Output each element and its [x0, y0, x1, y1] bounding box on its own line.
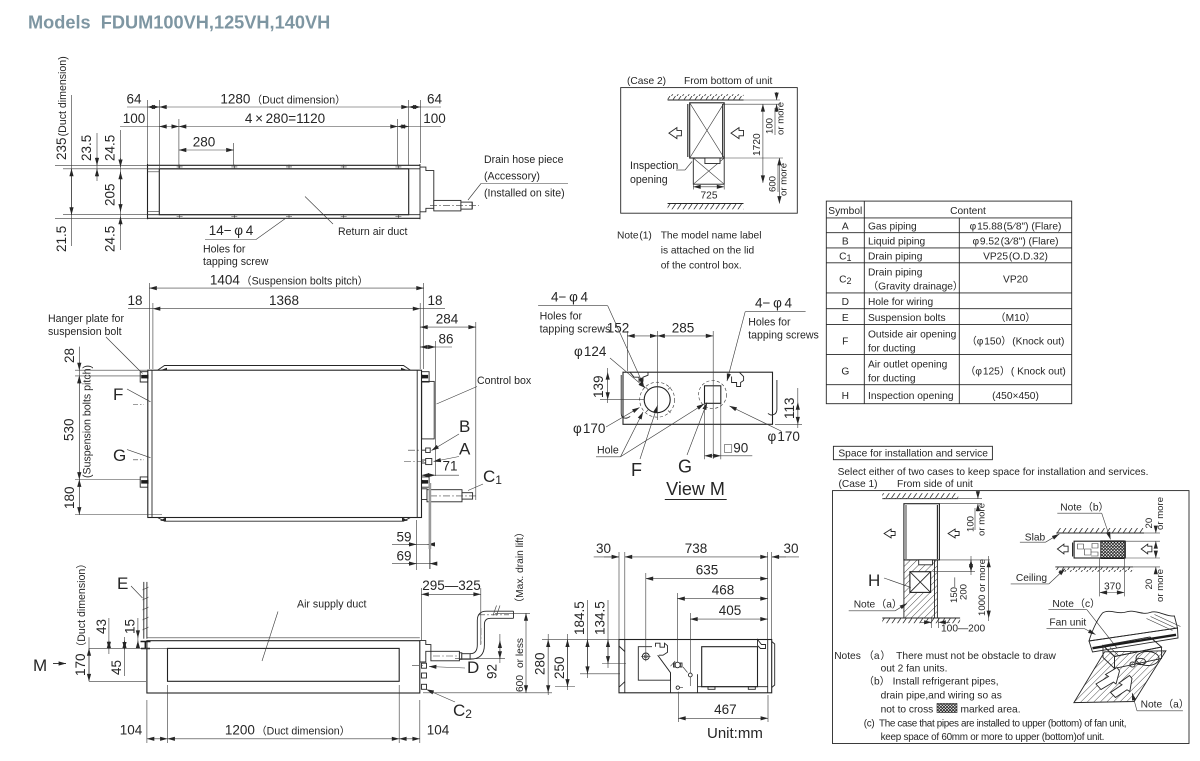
svg-text:(Case 2): (Case 2): [627, 76, 666, 87]
svg-text:20: 20: [1144, 518, 1155, 529]
svg-text:or less: or less: [515, 638, 526, 668]
svg-text:1368: 1368: [269, 293, 299, 308]
svg-text:Liquid piping: Liquid piping: [868, 236, 926, 247]
svg-text:Holes for: Holes for: [540, 311, 583, 323]
svg-text:The model name label: The model name label: [661, 231, 762, 242]
svg-text:600: 600: [515, 675, 526, 692]
svg-text:69: 69: [396, 549, 411, 564]
svg-text:24.5: 24.5: [103, 135, 118, 161]
svg-text:20: 20: [1144, 579, 1155, 590]
svg-text:Air supply duct: Air supply duct: [297, 599, 367, 611]
svg-text:Drain hose piece: Drain hose piece: [484, 154, 564, 166]
svg-text:M: M: [33, 656, 47, 675]
svg-text:104: 104: [120, 723, 143, 738]
svg-text:φ 15.88 (5 ∕ 8") (Flare): φ 15.88 (5 ∕ 8") (Flare): [970, 221, 1062, 232]
svg-text:Hole for wiring: Hole for wiring: [868, 297, 933, 308]
svg-text:drain pipe,and wiring so as: drain pipe,and wiring so as: [881, 691, 1002, 702]
svg-text:285: 285: [672, 320, 695, 335]
svg-text:23.5: 23.5: [79, 135, 94, 161]
svg-text:(Accessory): (Accessory): [484, 171, 540, 183]
svg-text:100: 100: [765, 118, 776, 134]
svg-text:468: 468: [712, 583, 735, 598]
svg-text:30: 30: [783, 541, 798, 556]
svg-text:100—200: 100—200: [941, 624, 986, 635]
svg-text:280: 280: [193, 135, 216, 150]
svg-text:F: F: [113, 385, 123, 404]
svg-text:tapping screw: tapping screw: [203, 256, 269, 268]
svg-text:530: 530: [62, 418, 77, 441]
svg-text:out 2 fan units.: out 2 fan units.: [881, 664, 948, 675]
svg-text:467: 467: [714, 702, 737, 717]
svg-text:59: 59: [396, 530, 411, 545]
svg-text:205: 205: [103, 183, 118, 206]
svg-text:C2: C2: [453, 701, 472, 721]
svg-text:18: 18: [127, 293, 142, 308]
svg-text:(Case 1): (Case 1): [839, 479, 878, 490]
svg-text:VP25 (O.D.32): VP25 (O.D.32): [983, 251, 1048, 262]
svg-text:284: 284: [436, 312, 459, 327]
svg-text:Space for installation and ser: Space for installation and service: [838, 449, 988, 460]
svg-text:F: F: [631, 460, 642, 480]
svg-text:170 （Duct dimension）: 170 （Duct dimension）: [73, 558, 88, 676]
svg-text:D: D: [842, 297, 849, 308]
svg-text:suspension bolt: suspension bolt: [48, 326, 122, 338]
svg-text:Symbol: Symbol: [828, 206, 862, 217]
svg-text:4− φ 4: 4− φ 4: [551, 290, 589, 305]
svg-text:250: 250: [552, 656, 567, 679]
svg-text:Note (1): Note (1): [617, 231, 652, 242]
svg-text:B: B: [842, 236, 849, 247]
svg-text:View M: View M: [666, 479, 725, 499]
svg-text:or more: or more: [1155, 497, 1166, 530]
svg-text:1000 or more: 1000 or more: [977, 559, 988, 616]
svg-text:tapping screws: tapping screws: [748, 330, 819, 342]
svg-text:A: A: [842, 221, 849, 232]
svg-text:Ceiling: Ceiling: [1016, 573, 1047, 584]
svg-text:opening: opening: [630, 174, 668, 186]
svg-text:104: 104: [427, 723, 450, 738]
svg-text:Note （c）: Note （c）: [1052, 598, 1100, 610]
svg-text:B: B: [459, 417, 470, 436]
svg-text:Models FDUM100VH,125VH,140VH: Models FDUM100VH,125VH,140VH: [28, 13, 330, 33]
svg-text:E: E: [842, 313, 849, 324]
svg-text:635: 635: [696, 563, 719, 578]
svg-text:(c) The case that pipes are i: (c) The case that pipes are installed to…: [864, 719, 1126, 730]
svg-text:113: 113: [782, 397, 797, 419]
svg-text:45: 45: [109, 660, 124, 675]
svg-text:Unit:mm: Unit:mm: [707, 725, 763, 742]
svg-text:235 (Duct dimension): 235 (Duct dimension): [54, 56, 69, 160]
svg-text:C1: C1: [839, 251, 851, 263]
svg-text:Hanger plate for: Hanger plate for: [48, 313, 124, 325]
svg-text:Holes for: Holes for: [203, 244, 246, 256]
svg-text:4− φ 4: 4− φ 4: [755, 296, 793, 311]
svg-text:φ 9.52 (3 ∕ 8") (Flare): φ 9.52 (3 ∕ 8") (Flare): [972, 236, 1058, 247]
svg-text:or more: or more: [779, 163, 790, 196]
svg-text:From bottom of unit: From bottom of unit: [684, 76, 772, 87]
svg-text:Content: Content: [950, 206, 986, 217]
svg-text:not to cross: not to cross: [881, 704, 934, 715]
svg-text:92: 92: [485, 664, 500, 679]
svg-text:Inspection opening: Inspection opening: [868, 391, 954, 402]
svg-text:(Suspension bolts pitch): (Suspension bolts pitch): [82, 365, 94, 478]
svg-text:Control box: Control box: [477, 375, 532, 387]
svg-text:Note （a）: Note （a）: [854, 599, 902, 611]
svg-text:725: 725: [701, 191, 718, 202]
svg-text:Return air duct: Return air duct: [338, 226, 408, 238]
svg-text:Holes for: Holes for: [748, 317, 791, 329]
svg-text:or more: or more: [776, 102, 787, 135]
svg-text:or more: or more: [1155, 569, 1166, 602]
svg-text:G: G: [841, 367, 849, 378]
svg-text:Inspection: Inspection: [630, 160, 678, 172]
svg-text:marked area.: marked area.: [961, 704, 1021, 715]
svg-text:for ducting: for ducting: [868, 344, 916, 355]
svg-text:Note （a）: Note （a）: [1141, 699, 1189, 711]
svg-text:24.5: 24.5: [103, 226, 118, 252]
svg-text:1280 （Duct dimension）: 1280 （Duct dimension）: [220, 92, 345, 107]
svg-text:Notes （a ） There must not be: Notes （a ） There must not be obstacle to…: [834, 650, 1056, 662]
svg-text:H: H: [868, 571, 880, 590]
svg-text:（b） Install refrigerant pipes,: （b） Install refrigerant pipes,: [864, 675, 999, 687]
svg-text:E: E: [117, 574, 128, 593]
svg-text:φ 170: φ 170: [768, 429, 800, 444]
svg-text:Drain piping: Drain piping: [868, 268, 923, 279]
svg-text:Slab: Slab: [1025, 532, 1046, 543]
svg-text:64: 64: [126, 92, 142, 107]
svg-text:1720: 1720: [752, 133, 763, 156]
svg-text:Outside air opening: Outside air opening: [868, 330, 957, 341]
svg-text:keep space of 60mm or more to: keep space of 60mm or more to upper (bot…: [881, 732, 1105, 743]
svg-text:86: 86: [438, 332, 453, 347]
svg-text:28: 28: [62, 348, 77, 363]
svg-text:D: D: [467, 658, 479, 677]
svg-text:(450×450): (450×450): [992, 391, 1039, 402]
svg-text:Fan unit: Fan unit: [1049, 618, 1086, 629]
svg-text:H: H: [842, 391, 849, 402]
svg-text:180: 180: [62, 486, 77, 509]
svg-text:C2: C2: [839, 275, 851, 287]
svg-text:（φ 125） ( Knock out): （φ 125） ( Knock out): [965, 366, 1066, 378]
svg-text:or more: or more: [977, 503, 988, 536]
svg-text:200: 200: [959, 584, 970, 600]
svg-text:A: A: [459, 440, 471, 459]
svg-text:71: 71: [442, 459, 457, 474]
svg-text:1404 （Suspension bolts pitch）: 1404 （Suspension bolts pitch）: [210, 273, 368, 288]
svg-text:600: 600: [768, 176, 779, 192]
svg-text:Air outlet opening: Air outlet opening: [868, 360, 948, 371]
svg-text:is attached on the lid: is attached on the lid: [661, 246, 755, 257]
svg-text:C1: C1: [483, 467, 502, 487]
svg-text:100: 100: [423, 111, 446, 126]
svg-text:for ducting: for ducting: [868, 374, 916, 385]
svg-text:Drain piping: Drain piping: [868, 251, 923, 262]
svg-text:Suspension bolts: Suspension bolts: [868, 313, 946, 324]
svg-text:139: 139: [591, 375, 606, 398]
svg-text:Gas piping: Gas piping: [868, 221, 917, 232]
svg-text:F: F: [842, 337, 848, 348]
svg-text:Select either of two cases to: Select either of two cases to keep space…: [838, 467, 1149, 478]
svg-text:VP20: VP20: [1003, 275, 1028, 286]
svg-text:30: 30: [596, 541, 611, 556]
svg-text:φ 124: φ 124: [574, 344, 607, 359]
svg-text:□ 90: □ 90: [724, 440, 748, 455]
svg-text:134.5: 134.5: [593, 601, 608, 635]
svg-text:φ 170: φ 170: [573, 421, 605, 436]
svg-text:64: 64: [427, 92, 443, 107]
svg-text:405: 405: [719, 603, 742, 618]
svg-text:18: 18: [427, 293, 442, 308]
svg-text:（M10）: （M10）: [995, 312, 1035, 324]
svg-text:370: 370: [1104, 582, 1121, 593]
svg-text:100: 100: [123, 111, 146, 126]
svg-text:1200 （Duct dimension）: 1200 （Duct dimension）: [225, 723, 350, 738]
svg-text:G: G: [113, 446, 126, 465]
svg-text:14− φ 4: 14− φ 4: [209, 223, 254, 238]
svg-text:280: 280: [533, 652, 548, 675]
svg-text:(Installed on site): (Installed on site): [484, 188, 565, 200]
svg-text:（Max. drain lift）: （Max. drain lift）: [514, 527, 526, 608]
svg-text:43: 43: [94, 619, 109, 634]
svg-text:G: G: [678, 457, 692, 477]
svg-text:184.5: 184.5: [572, 601, 587, 635]
svg-text:295—325: 295—325: [422, 578, 481, 593]
svg-text:21.5: 21.5: [54, 226, 69, 252]
svg-text:From side of unit: From side of unit: [897, 479, 973, 490]
svg-text:（Gravity drainage）: （Gravity drainage）: [868, 281, 963, 293]
svg-text:of the control box.: of the control box.: [661, 261, 742, 272]
svg-text:4 × 280=1120: 4 × 280=1120: [245, 111, 325, 126]
svg-text:tapping screws: tapping screws: [540, 324, 611, 336]
svg-text:Hole: Hole: [597, 445, 619, 457]
svg-text:15: 15: [123, 619, 138, 634]
svg-text:Note （b）: Note （b）: [1060, 501, 1108, 513]
svg-text:（φ 150） (Knock out): （φ 150） (Knock out): [967, 336, 1065, 348]
svg-text:738: 738: [685, 541, 708, 556]
